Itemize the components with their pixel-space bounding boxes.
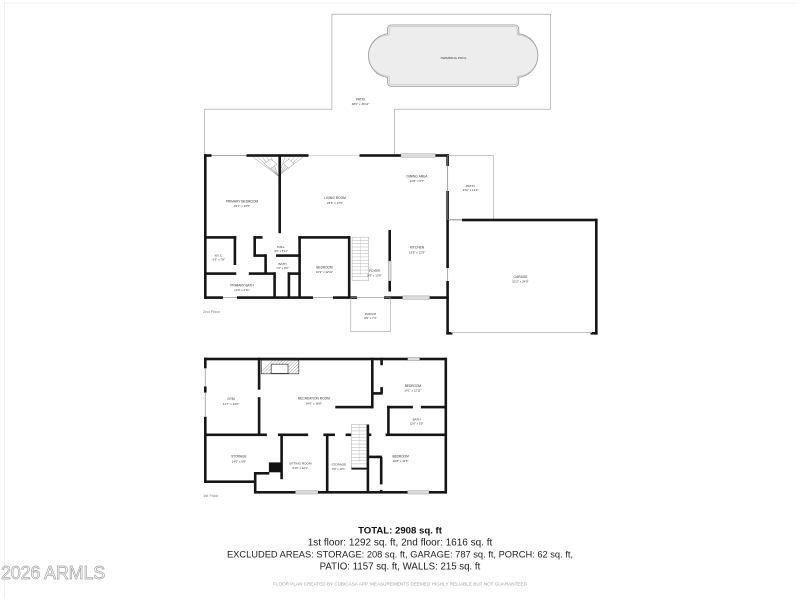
svg-text:BATH: BATH — [278, 262, 286, 266]
svg-text:DINING AREA: DINING AREA — [407, 174, 429, 178]
svg-text:TOTAL: 2908 sq. ft: TOTAL: 2908 sq. ft — [358, 526, 443, 537]
svg-text:RECREATION ROOM: RECREATION ROOM — [298, 397, 330, 401]
svg-text:FLOOR PLAN CREATED BY CUBICASA: FLOOR PLAN CREATED BY CUBICASA APP. MEAS… — [273, 582, 528, 587]
svg-text:STORAGE: STORAGE — [231, 455, 246, 459]
svg-text:23'6" x 17'0": 23'6" x 17'0" — [327, 201, 343, 205]
svg-text:20'8" x 11'6": 20'8" x 11'6" — [393, 459, 409, 463]
svg-text:PATIO: PATIO — [466, 184, 475, 188]
svg-text:24'6" x 16'8": 24'6" x 16'8" — [306, 402, 322, 406]
svg-text:PATIO: PATIO — [356, 97, 366, 101]
svg-text:GARAGE: GARAGE — [514, 275, 529, 279]
svg-text:EXCLUDED AREAS: STORAGE: 208 s: EXCLUDED AREAS: STORAGE: 208 sq. ft, GAR… — [227, 550, 573, 560]
svg-text:1st Floor: 1st Floor — [203, 493, 219, 498]
svg-text:BATH: BATH — [413, 417, 421, 421]
svg-text:BEDROOM: BEDROOM — [405, 384, 422, 388]
svg-text:PATIO: 1157 sq. ft, WALLS: 215: PATIO: 1157 sq. ft, WALLS: 215 sq. ft — [320, 562, 481, 573]
svg-text:SITTING ROOM: SITTING ROOM — [289, 462, 312, 466]
svg-text:KITCHEN: KITCHEN — [410, 246, 425, 250]
svg-text:12'6" x 5'0": 12'6" x 5'0" — [410, 422, 424, 426]
svg-text:W.I.C.: W.I.C. — [215, 253, 224, 257]
svg-text:13'8" x 22'5": 13'8" x 22'5" — [409, 250, 425, 254]
svg-text:GYM: GYM — [227, 397, 235, 401]
svg-text:STORAGE: STORAGE — [331, 463, 346, 467]
svg-text:12'8" x 6'7": 12'8" x 6'7" — [410, 179, 425, 183]
svg-text:PRIMARY BATH: PRIMARY BATH — [230, 283, 254, 287]
svg-text:14'0" x 9'8": 14'0" x 9'8" — [232, 459, 246, 463]
svg-text:7'2" x 9'0": 7'2" x 9'0" — [276, 266, 288, 270]
svg-text:5'9" x 12'1": 5'9" x 12'1" — [332, 467, 346, 471]
svg-text:PRIMARY BEDROOM: PRIMARY BEDROOM — [226, 199, 259, 203]
svg-text:HALL: HALL — [277, 245, 285, 249]
svg-text:14'1" x 12'11": 14'1" x 12'11" — [404, 389, 421, 393]
svg-text:6'5" x 7'8": 6'5" x 7'8" — [213, 258, 225, 262]
svg-text:BEDROOM: BEDROOM — [392, 454, 409, 458]
svg-text:52'2" x 24'9": 52'2" x 24'9" — [512, 280, 528, 284]
svg-text:10'9" x 12'11": 10'9" x 12'11" — [316, 270, 333, 274]
svg-text:SWIMMING POOL: SWIMMING POOL — [441, 56, 467, 60]
svg-text:2nd Floor: 2nd Floor — [203, 309, 221, 314]
svg-text:8'9" x 7'3": 8'9" x 7'3" — [364, 316, 376, 320]
svg-text:8'9" x 13'9": 8'9" x 13'9" — [367, 273, 381, 277]
svg-text:2026 ARMLS: 2026 ARMLS — [1, 563, 105, 583]
svg-text:FOYER: FOYER — [369, 269, 381, 273]
svg-text:16'1" x 23'5": 16'1" x 23'5" — [234, 204, 250, 208]
svg-text:BEDROOM: BEDROOM — [316, 265, 333, 269]
svg-text:13'9" x 6'11": 13'9" x 6'11" — [234, 288, 250, 292]
svg-text:48'0" x 36'11": 48'0" x 36'11" — [352, 102, 370, 106]
svg-text:4'0" x 5'11": 4'0" x 5'11" — [274, 249, 288, 253]
svg-text:9'10" x 12'1": 9'10" x 12'1" — [292, 466, 308, 470]
svg-text:1st floor: 1292 sq. ft, 2nd fl: 1st floor: 1292 sq. ft, 2nd floor: 1616 … — [308, 538, 493, 549]
svg-text:11'7" x 14'6": 11'7" x 14'6" — [223, 402, 239, 406]
svg-text:PORCH: PORCH — [365, 312, 376, 316]
svg-text:LIVING ROOM: LIVING ROOM — [324, 196, 346, 200]
svg-text:9'10" x 14'2": 9'10" x 14'2" — [463, 188, 479, 192]
